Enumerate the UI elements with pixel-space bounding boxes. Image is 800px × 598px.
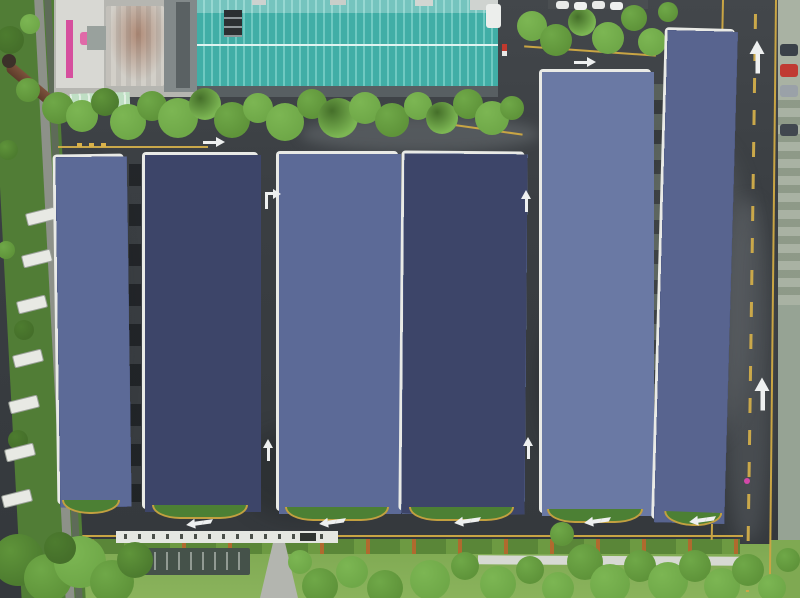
road-arrow (453, 513, 482, 529)
dark-car (780, 124, 798, 136)
arrow-stem (525, 198, 528, 212)
tree (758, 574, 786, 598)
road-arrow (516, 190, 536, 216)
solar-panel-cell (401, 153, 527, 514)
white-car (486, 4, 501, 28)
pink-banner (66, 20, 73, 78)
zig-bar (335, 518, 346, 524)
tree (20, 14, 40, 34)
solar-canopy-2 (142, 152, 258, 509)
red-car (780, 64, 798, 77)
zig-bar (600, 517, 611, 523)
building-rust-roof (106, 6, 164, 86)
solar-canopy-4-logo-panels (401, 153, 527, 514)
arrow-stem (267, 447, 270, 461)
tree (410, 560, 450, 598)
tree (516, 556, 544, 584)
zig-bar (470, 517, 481, 523)
tree (638, 28, 666, 56)
solar-canopy-2-panels (145, 155, 261, 512)
red-pole-base (502, 51, 507, 56)
arrow-stem (203, 141, 217, 144)
solar-panel-cell (654, 30, 738, 524)
tree (568, 8, 596, 36)
zig-bar (705, 516, 716, 522)
solar-canopy-5 (539, 69, 651, 513)
roof-top-bit (330, 0, 346, 5)
right-road-edge-line (769, 0, 777, 598)
road-arrow (747, 378, 777, 417)
solar-canopy-6-panels (654, 30, 738, 524)
tree (540, 24, 572, 56)
dark-car (780, 44, 798, 56)
solar-canopy-6 (651, 27, 735, 521)
arrow-stem (527, 445, 530, 459)
tree (658, 2, 678, 22)
road-arrow (185, 515, 214, 531)
road-arrow (688, 512, 717, 528)
magenta-marker (744, 478, 750, 484)
road-arrow (261, 187, 281, 213)
arrow-head (216, 137, 225, 147)
solar-canopy-5-panels (542, 72, 654, 516)
white-car (610, 2, 623, 10)
arrow-stem (760, 390, 765, 411)
tree (451, 552, 479, 580)
conduit-strip (129, 164, 141, 502)
covered-walkway-lines (142, 552, 246, 570)
roof-top-bit (252, 0, 266, 5)
tree (367, 570, 403, 598)
teal-roof (197, 0, 498, 96)
tree (776, 548, 800, 572)
yellow-dot (77, 143, 82, 147)
road-arrow (258, 439, 278, 465)
teal-roof-ridge (197, 44, 498, 46)
zig-bar (202, 519, 213, 525)
solar-canopy-3-logo (276, 151, 398, 511)
teal-roof-highlight (197, 0, 498, 13)
tree (44, 532, 76, 564)
rooftop-units (87, 26, 106, 50)
solar-panel-cell (56, 156, 132, 507)
road-arrow (742, 41, 772, 80)
tree (480, 566, 516, 598)
white-car (574, 2, 587, 10)
arrow-stem (574, 61, 588, 64)
arrow-head (273, 189, 281, 199)
sign-wall-dark-seg (300, 533, 316, 541)
tree (288, 550, 312, 574)
tree (542, 572, 574, 598)
roof-top-bit (415, 0, 433, 6)
solar-canopy-4-logo (398, 150, 524, 511)
yellow-dot (101, 143, 106, 147)
tree (117, 542, 153, 578)
road-arrow (318, 514, 347, 530)
chimney-cap (2, 54, 16, 68)
white-car (592, 1, 605, 9)
roof-vent (224, 10, 242, 37)
tree (592, 22, 624, 54)
tree (550, 522, 574, 546)
road-arrow (199, 132, 225, 152)
yellow-dot (89, 143, 94, 147)
road-arrow (583, 513, 612, 529)
sign-wall-marks (124, 534, 324, 539)
tree (500, 96, 524, 120)
gray-car (780, 85, 798, 97)
tree (302, 568, 338, 598)
road-arrow (570, 52, 596, 72)
building-annex-dark (176, 2, 190, 88)
solar-canopy-3-logo-panels (279, 154, 401, 514)
tree (14, 320, 34, 340)
solar-panel-cell (542, 72, 654, 516)
white-car (556, 1, 569, 9)
tree (621, 5, 647, 31)
arrow-stem (755, 53, 760, 74)
tree (336, 556, 368, 588)
solar-panel-cell (145, 155, 261, 512)
red-pole (502, 44, 507, 51)
teal-roof-eave (197, 86, 498, 97)
solar-panel-cell (279, 154, 401, 514)
right-parking-pad (778, 305, 800, 540)
aerial-photo-scene (0, 0, 800, 598)
tree (16, 78, 40, 102)
road-arrow (518, 437, 538, 463)
arrow-head (587, 57, 596, 67)
solar-canopy-1-panels (56, 156, 132, 507)
solar-canopy-1 (53, 154, 129, 505)
